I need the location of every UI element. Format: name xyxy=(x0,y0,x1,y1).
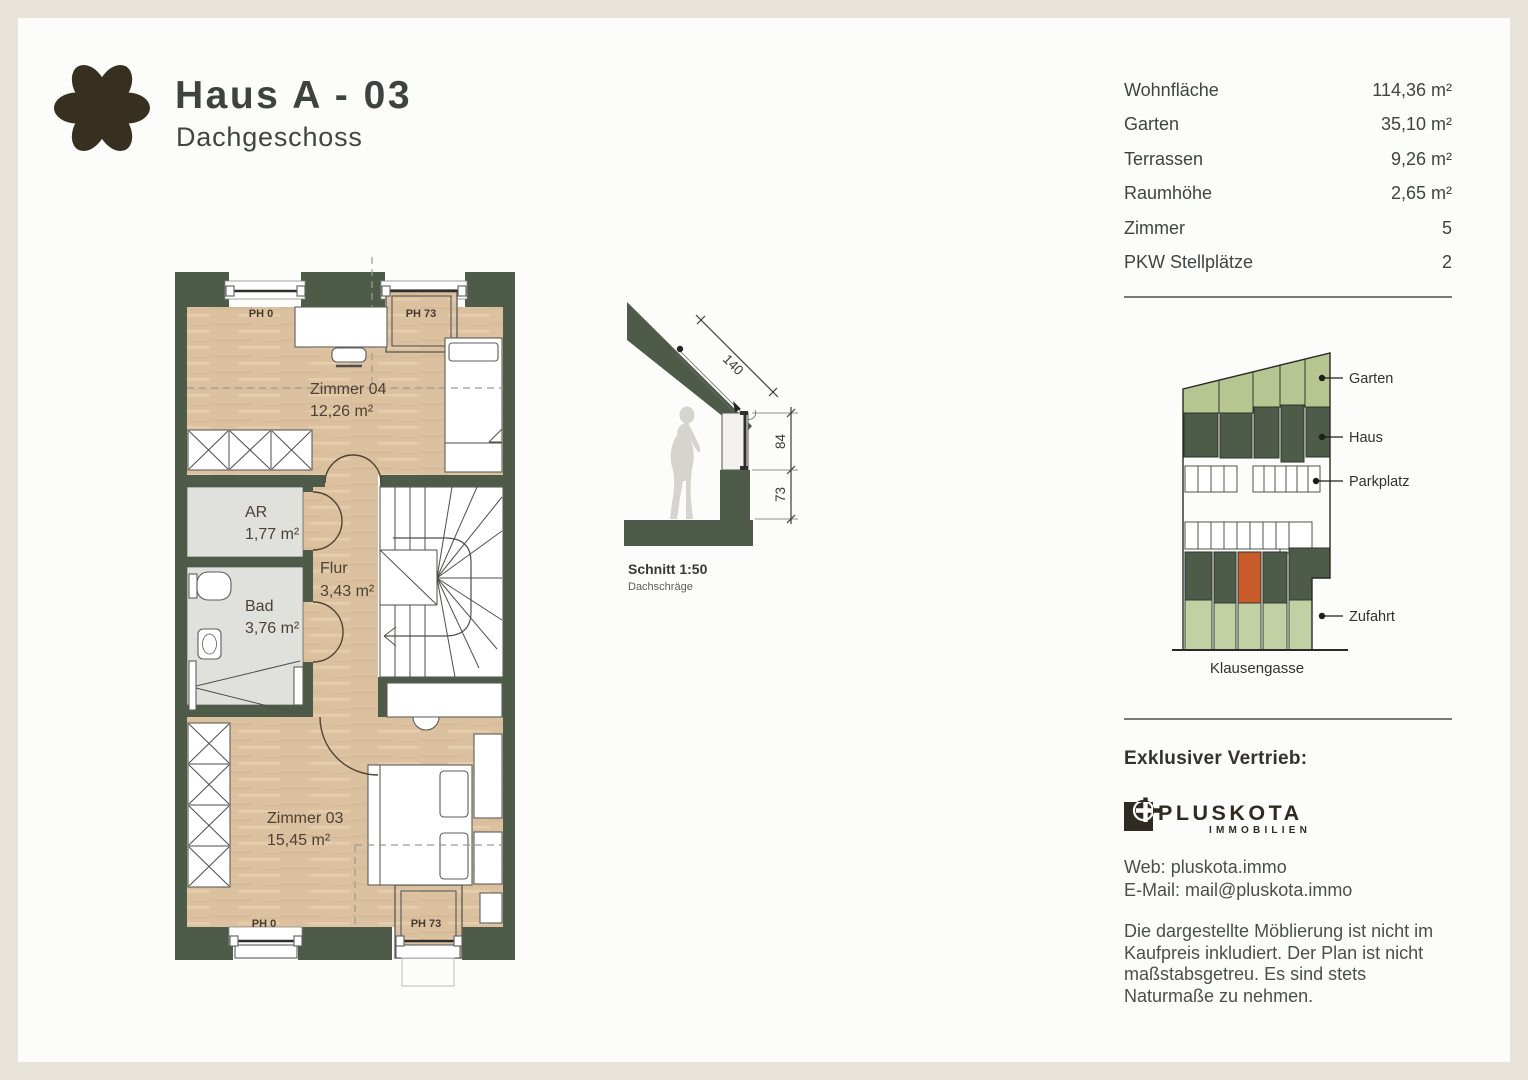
floor-slab xyxy=(624,520,753,546)
roof-window-hinge xyxy=(677,346,683,352)
pluskota-logo: PLUSKOTA IMMOBILIEN xyxy=(1124,797,1334,841)
nightstand-icon xyxy=(474,734,502,818)
stat-row: Raumhöhe2,65 m² xyxy=(1124,177,1452,212)
stat-label: PKW Stellplätze xyxy=(1124,252,1253,273)
window-bottom-right xyxy=(395,885,462,986)
ph-label: PH 0 xyxy=(252,918,276,930)
dim-73: 73 xyxy=(773,487,788,502)
expose-page: { "header": { "title": "Haus A - 03", "s… xyxy=(0,0,1528,1080)
stat-label: Terrassen xyxy=(1124,149,1203,170)
schnitt-subtitle: Dachschräge xyxy=(628,581,693,593)
page-card: Haus A - 03 Dachgeschoss Wohnfläche114,3… xyxy=(18,18,1510,1062)
stat-value: 5 xyxy=(1442,218,1452,239)
stat-label: Raumhöhe xyxy=(1124,183,1212,204)
legend-parkplatz: Parkplatz xyxy=(1349,474,1409,490)
vendor-heading: Exklusiver Vertrieb: xyxy=(1124,748,1307,770)
room-name: Zimmer 04 xyxy=(310,381,387,398)
site-houses-top xyxy=(1184,405,1330,462)
divider xyxy=(1124,718,1452,720)
contact-block: Web: pluskota.immo E-Mail: mail@pluskota… xyxy=(1124,856,1352,901)
room-area: 15,45 m² xyxy=(267,832,331,849)
stat-row: Garten35,10 m² xyxy=(1124,108,1452,143)
site-houses-bottom xyxy=(1185,548,1330,603)
legend-haus: Haus xyxy=(1349,430,1383,446)
room-name: Bad xyxy=(245,598,273,615)
page-title: Haus A - 03 xyxy=(175,74,412,118)
room-area: 3,43 m² xyxy=(320,583,375,600)
stat-value: 9,26 m² xyxy=(1391,149,1452,170)
ph-label: PH 0 xyxy=(249,308,273,320)
stat-label: Zimmer xyxy=(1124,218,1185,239)
knee-wall-base xyxy=(720,470,750,523)
stat-row: Zimmer5 xyxy=(1124,211,1452,246)
stat-label: Garten xyxy=(1124,114,1179,135)
person-silhouette xyxy=(670,407,700,520)
schnitt-title: Schnitt 1:50 xyxy=(628,561,708,577)
room-area: 3,76 m² xyxy=(245,620,300,637)
page-subtitle: Dachgeschoss xyxy=(176,122,363,153)
dim-140: 140 xyxy=(720,352,747,379)
brand-subname: IMMOBILIEN xyxy=(1209,825,1311,836)
street-name: Klausengasse xyxy=(1210,660,1304,677)
nightstand-icon xyxy=(474,832,502,884)
stat-value: 35,10 m² xyxy=(1381,114,1452,135)
room-name: Zimmer 03 xyxy=(267,810,344,827)
divider xyxy=(1124,296,1452,298)
stat-value: 114,36 m² xyxy=(1372,80,1452,101)
toilet-icon xyxy=(189,574,197,598)
highlighted-unit xyxy=(1238,552,1261,603)
stair-landing xyxy=(387,683,502,717)
floor-plan: Zimmer 04 12,26 m² AR 1,77 m² Flur 3,43 … xyxy=(170,225,520,1000)
legend-zufahrt: Zufahrt xyxy=(1349,609,1395,625)
brand-name: PLUSKOTA xyxy=(1158,801,1303,825)
room-area: 1,77 m² xyxy=(245,526,300,543)
stat-value: 2 xyxy=(1442,252,1452,273)
double-bed-icon xyxy=(368,765,472,885)
stairs xyxy=(380,487,503,677)
site-plan: Garten Haus Parkplatz Zufahrt Klausengas… xyxy=(1150,340,1450,685)
stat-row: Wohnfläche114,36 m² xyxy=(1124,73,1452,108)
radiator-icon xyxy=(480,893,502,923)
dimension-vertical: 84 73 xyxy=(752,407,798,524)
window-bottom-left xyxy=(229,927,302,958)
sink-icon xyxy=(198,629,221,659)
section-drawing: 140 84 73 Schnitt 1:50 Dachschräge xyxy=(605,285,820,610)
room-name: Flur xyxy=(320,560,348,577)
stat-row: PKW Stellplätze2 xyxy=(1124,246,1452,281)
desk-icon xyxy=(295,307,387,347)
ar-floor xyxy=(187,487,303,557)
bed-icon xyxy=(445,338,502,472)
stat-value: 2,65 m² xyxy=(1391,183,1452,204)
disclaimer-text: Die dargestellte Möblierung ist nicht im… xyxy=(1124,921,1446,1007)
brand-flower-icon xyxy=(54,58,152,158)
room-name: AR xyxy=(245,504,267,521)
property-stats: Wohnfläche114,36 m² Garten35,10 m² Terra… xyxy=(1124,73,1452,280)
legend-garten: Garten xyxy=(1349,371,1393,387)
stat-row: Terrassen9,26 m² xyxy=(1124,142,1452,177)
ph-label: PH 73 xyxy=(411,918,442,930)
stat-label: Wohnfläche xyxy=(1124,80,1219,101)
site-parking-top xyxy=(1185,466,1320,492)
vendor-web: Web: pluskota.immo xyxy=(1124,856,1352,879)
chair-icon xyxy=(332,348,366,362)
room-area: 12,26 m² xyxy=(310,403,374,420)
site-access-strips xyxy=(1185,600,1312,650)
ph-label: PH 73 xyxy=(406,308,437,320)
window-top-left xyxy=(225,281,305,299)
dim-84: 84 xyxy=(773,434,788,450)
vendor-email: E-Mail: mail@pluskota.immo xyxy=(1124,879,1352,902)
